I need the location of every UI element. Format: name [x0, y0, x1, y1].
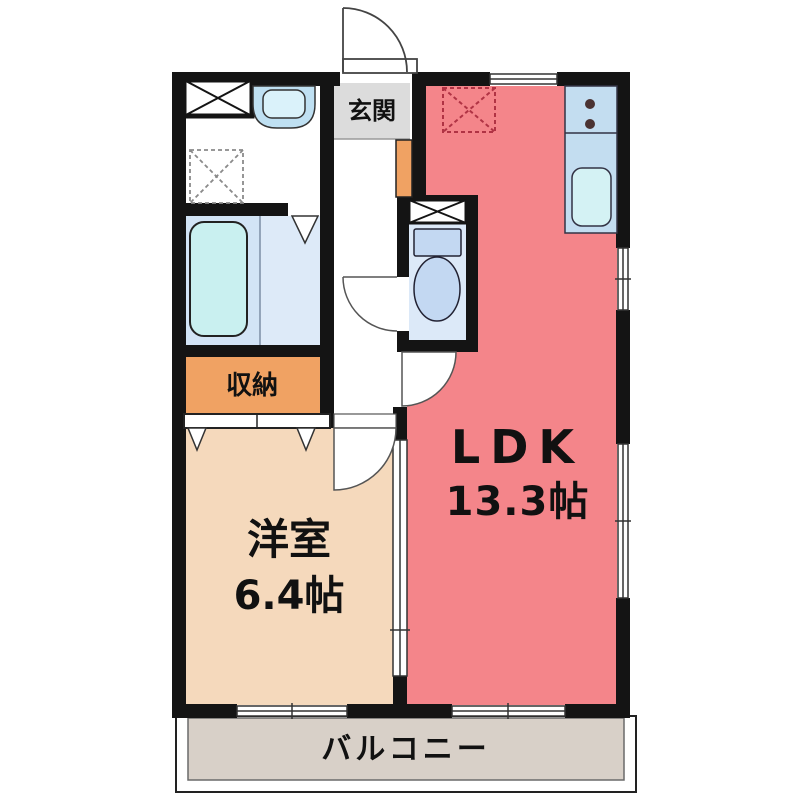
storage-label: 収納: [184, 357, 320, 415]
bathtub-icon: [190, 222, 247, 336]
entrance-door-icon: [343, 8, 417, 73]
window-bottom-ldk: [452, 703, 565, 719]
balcony-label: バルコニー: [188, 718, 624, 780]
ldk-name: LDK: [451, 422, 584, 473]
washbasin-icon: [253, 86, 315, 128]
shoe-cabinet-icon: [396, 140, 412, 197]
stove-burner-icon: [585, 119, 595, 129]
western-room-label: 洋室 6.4帖: [184, 505, 394, 630]
entrance-label: 玄関: [334, 83, 410, 139]
kitchen-sink-icon: [572, 168, 611, 226]
ldk-label: LDK 13.3帖: [425, 408, 610, 538]
washing-machine-space-icon: [190, 150, 243, 203]
stove-burner-icon: [585, 99, 595, 109]
western-room-size: 6.4帖: [234, 574, 345, 618]
window-right-kitchen: [615, 248, 631, 310]
ldk-size: 13.3帖: [446, 480, 590, 524]
window-right-ldk: [615, 444, 631, 598]
toilet-door-icon: [343, 277, 397, 331]
toilet-icon: [414, 229, 461, 321]
window-bottom-western-room: [237, 703, 347, 719]
closet-x-box-icon: [184, 80, 252, 116]
window-top: [490, 74, 557, 84]
western-room-name: 洋室: [247, 517, 331, 563]
kitchen-counter-icon: [565, 86, 617, 233]
toilet-shelf-x-box-icon: [409, 200, 466, 223]
floor-plan: 玄関 収納 洋室 6.4帖 LDK 13.3帖 バルコニー: [0, 0, 800, 800]
